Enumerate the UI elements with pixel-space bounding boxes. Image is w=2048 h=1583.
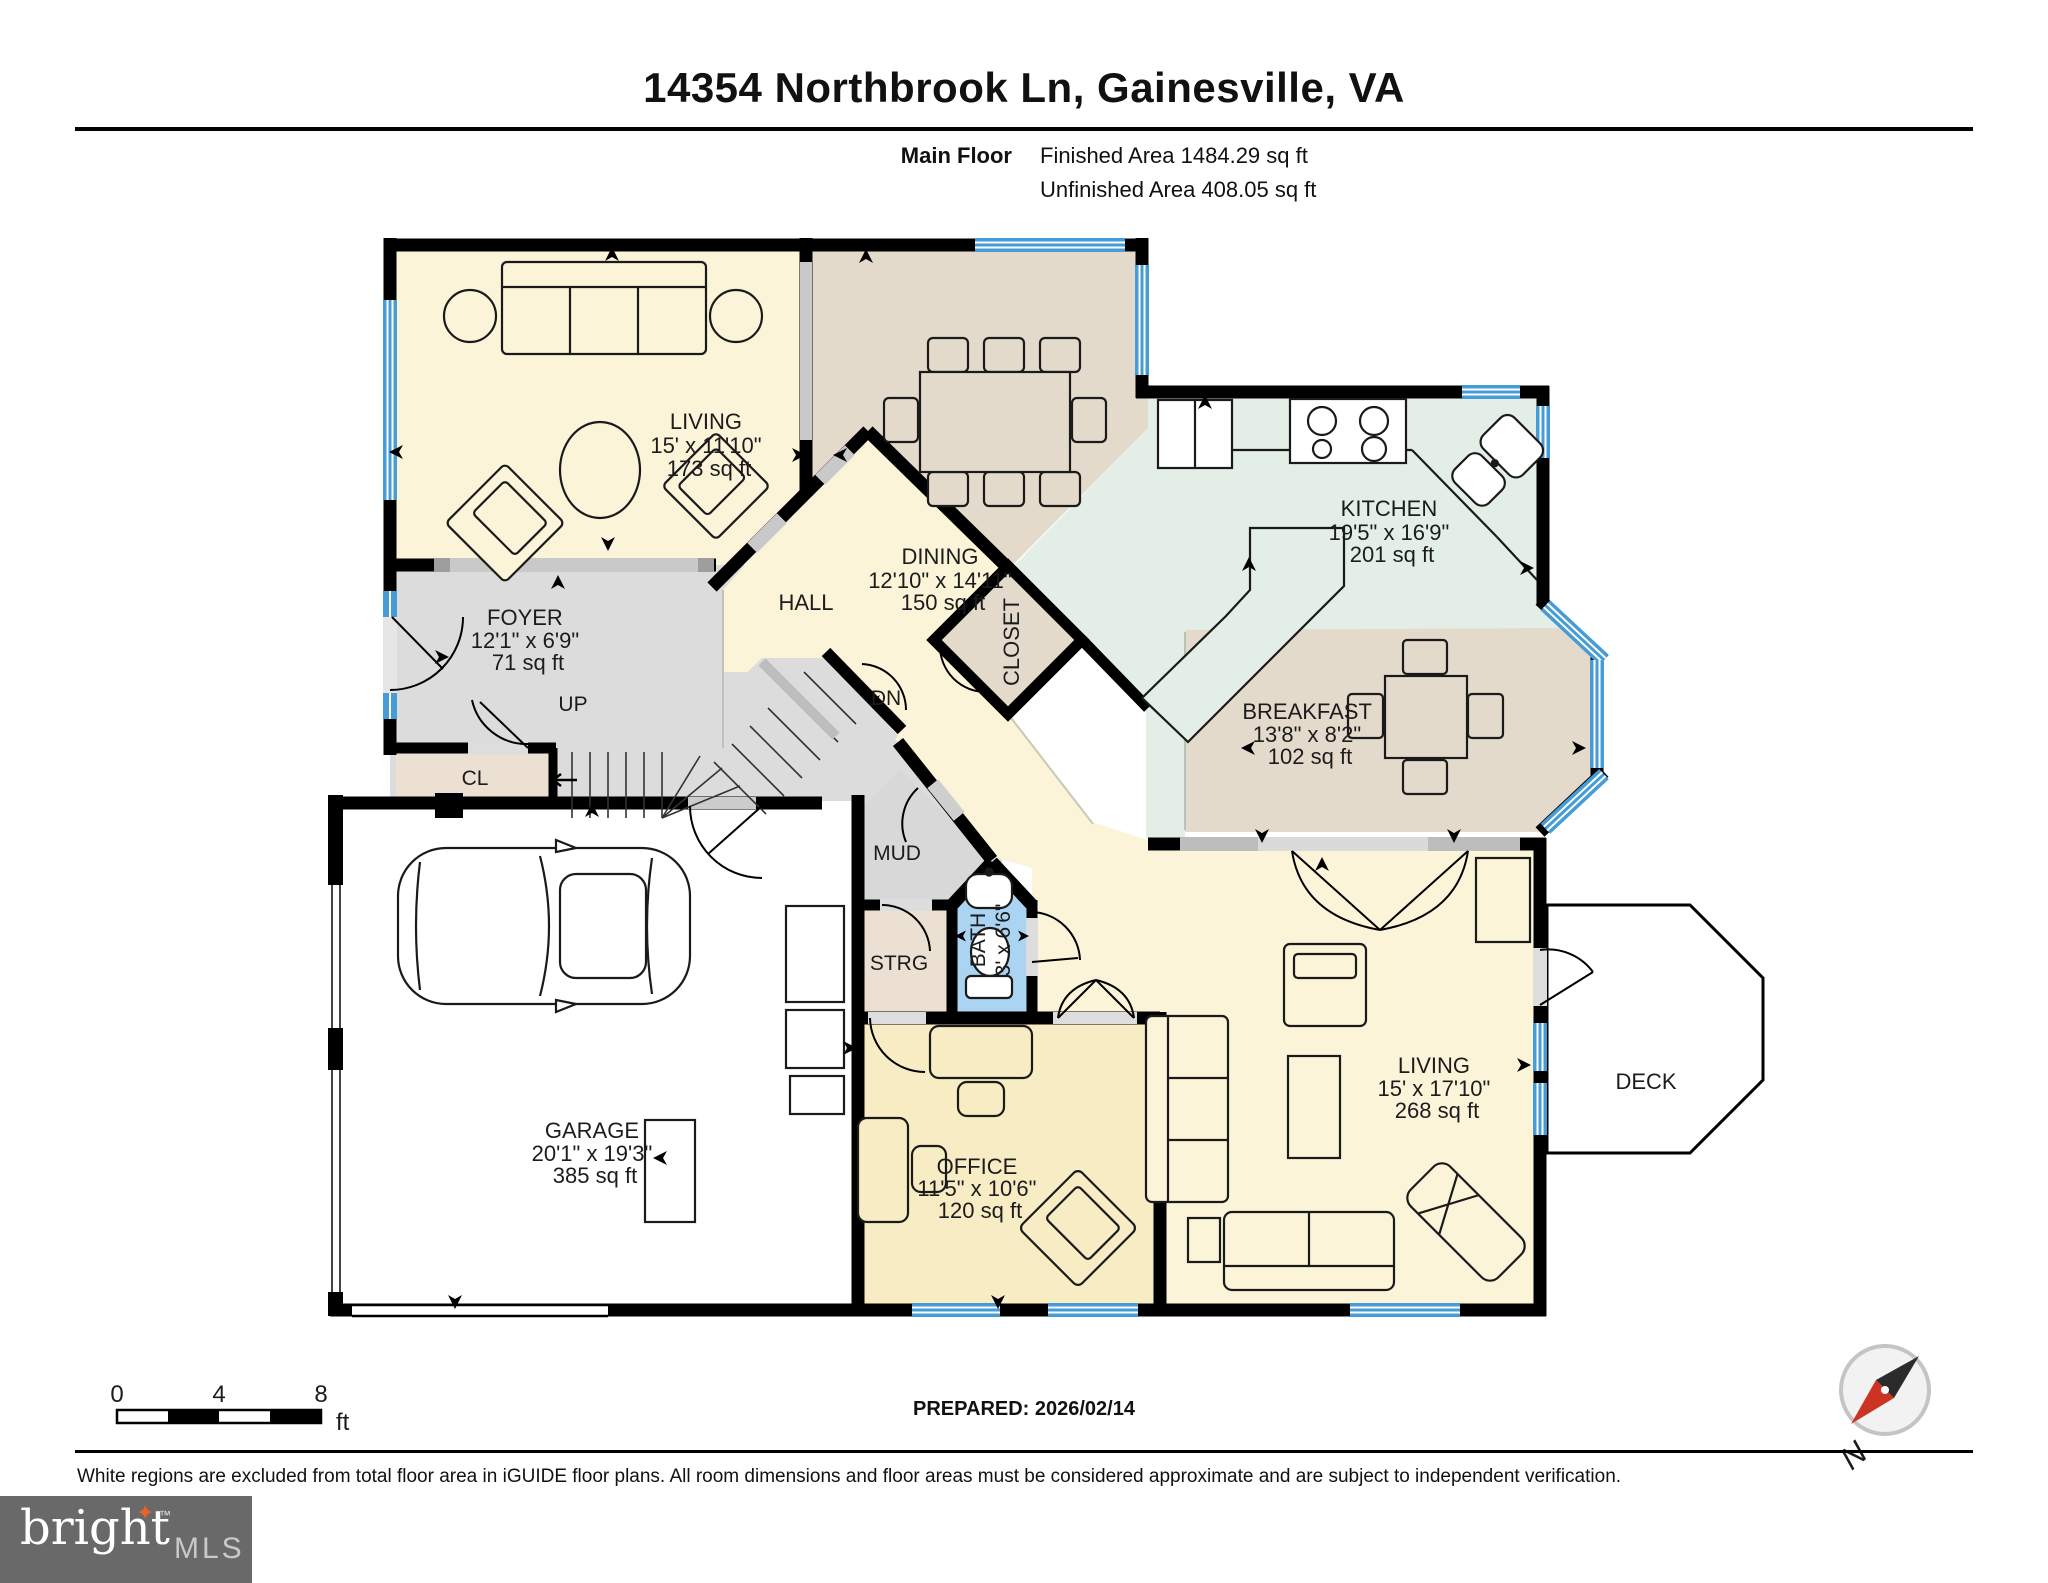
side-table	[1188, 1218, 1220, 1262]
prepared-date: PREPARED: 2026/02/14	[0, 1398, 2048, 1421]
disclaimer-text: White regions are excluded from total fl…	[77, 1466, 1621, 1488]
window-living-r-right-1	[1533, 1023, 1547, 1071]
label-up: UP	[558, 693, 587, 716]
garage-left-wall	[328, 795, 343, 1316]
label-closet: CLOSET	[999, 598, 1024, 686]
window-foyer-1	[383, 591, 397, 617]
window-dining-top	[975, 238, 1125, 252]
label-deck: DECK	[1615, 1069, 1676, 1094]
appliance	[786, 1010, 844, 1068]
logo-trademark: ™	[159, 1508, 171, 1522]
footer-divider	[75, 1450, 1973, 1453]
coffee-table	[1288, 1056, 1340, 1158]
sofa	[502, 262, 706, 354]
brightmls-logo: bright ✦ ™ MLS	[0, 1496, 252, 1583]
side-table	[710, 290, 762, 342]
side-table	[444, 290, 496, 342]
sectional-sofa	[1146, 1016, 1228, 1202]
label-bath-dims: 3' x 6'6"	[992, 904, 1015, 977]
garage-door	[352, 1304, 608, 1317]
window-living-r-right-2	[1533, 1083, 1547, 1135]
floor-plan-page: 14354 Northbrook Ln, Gainesville, VA Mai…	[0, 0, 2048, 1583]
window-foyer-2	[383, 693, 397, 719]
toilet-tank	[966, 976, 1012, 998]
desk	[930, 1026, 1032, 1078]
desk-chair	[958, 1082, 1004, 1116]
label-strg: STRG	[870, 952, 928, 975]
label-bath-name: BATH	[967, 913, 990, 967]
label-mud: MUD	[873, 842, 921, 865]
label-dn: DN	[871, 687, 901, 710]
appliance	[786, 906, 844, 1002]
logo-star-icon: ✦	[136, 1500, 154, 1526]
window-office-bottom-2	[1048, 1303, 1138, 1317]
label-cl: CL	[462, 767, 489, 790]
bath-sink	[966, 874, 1012, 908]
round-rug	[560, 422, 640, 518]
deck-outline	[1547, 905, 1763, 1153]
floor-plan-svg: LIVING 15' x 11'10" 173 sq ft DINING 12'…	[0, 0, 2048, 1583]
appliance	[790, 1076, 844, 1114]
window-bay-right	[1590, 660, 1604, 768]
window-dining-right	[1135, 265, 1149, 375]
window-office-bottom-1	[912, 1303, 1000, 1317]
tv-stand	[1476, 858, 1530, 942]
window-living-r-bottom	[1350, 1303, 1460, 1317]
window-kitchen-top	[1462, 385, 1520, 399]
logo-mls-text: MLS	[174, 1532, 245, 1566]
compass-north-label: N	[1833, 1433, 1875, 1476]
stove	[1290, 399, 1406, 463]
label-hall: HALL	[778, 590, 833, 615]
window-living-left	[383, 300, 397, 500]
desk	[858, 1118, 908, 1222]
shelf	[645, 1120, 695, 1222]
